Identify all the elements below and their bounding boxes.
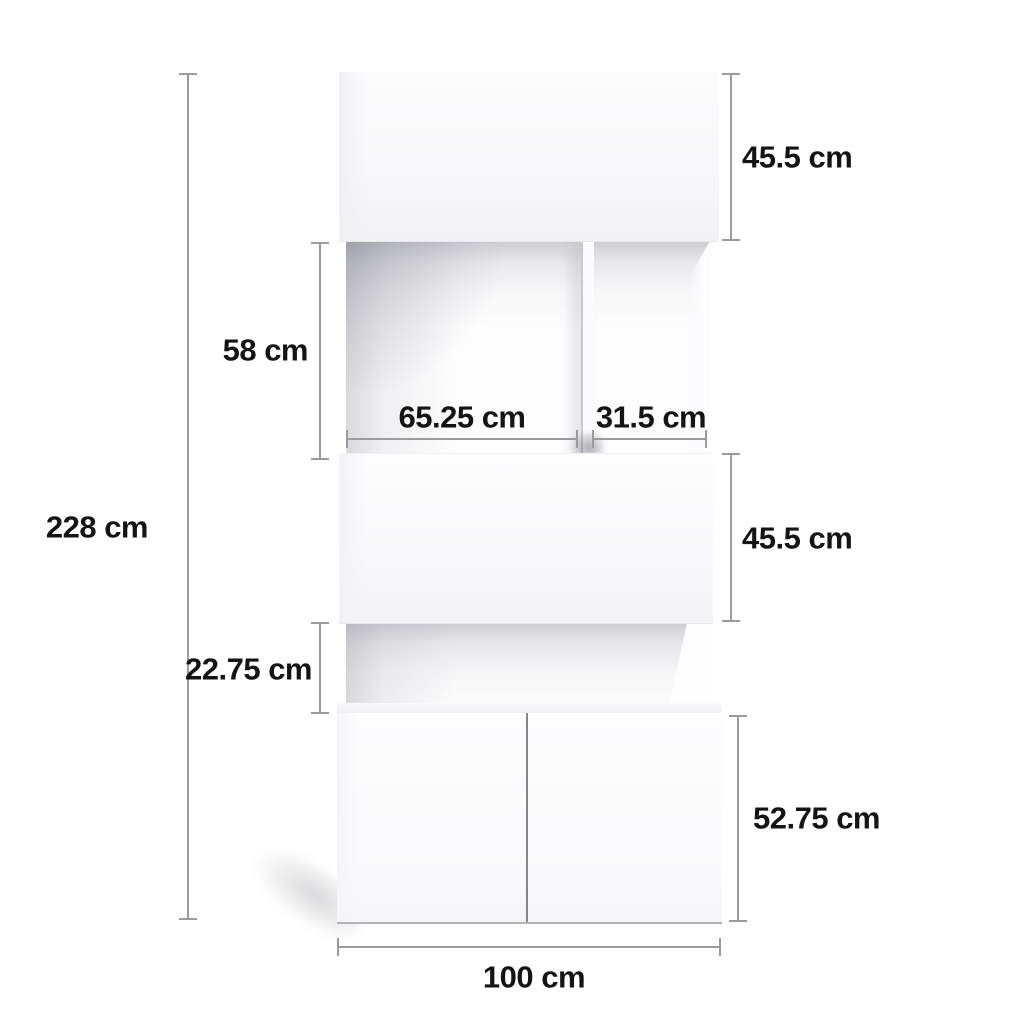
dimension-line-left-opening-width <box>346 438 578 440</box>
recess-corner-shadow <box>346 241 564 391</box>
label-total-width: 100 cm <box>483 962 585 993</box>
label-base-cabinet-height: 52.75 cm <box>753 803 880 834</box>
dimension-line-base-cabinet-height <box>737 715 739 922</box>
door-seam <box>526 713 528 922</box>
label-top-cabinet-height: 45.5 cm <box>742 142 852 173</box>
lower-recess <box>346 622 713 705</box>
label-open-shelf-height: 58 cm <box>223 335 308 366</box>
dimension-line-total-width <box>337 946 721 948</box>
dimension-line-middle-cabinet-height <box>730 453 732 622</box>
dimension-line-top-cabinet-height <box>730 73 732 241</box>
top-cabinet <box>339 72 719 242</box>
label-right-opening-width: 31.5 cm <box>596 402 706 433</box>
label-middle-cabinet-height: 45.5 cm <box>742 523 852 554</box>
dimension-line-right-opening-width <box>592 438 707 440</box>
dimension-line-total-height <box>187 73 189 920</box>
shelf-divider <box>581 241 594 455</box>
middle-cabinet <box>339 453 713 624</box>
base-cabinet <box>337 713 722 924</box>
lower-recess-left-shadow <box>346 622 713 705</box>
dimension-diagram: 228 cm 45.5 cm 58 cm 65.25 cm 31.5 cm 45… <box>0 0 1024 1024</box>
label-total-height: 228 cm <box>46 512 148 543</box>
dimension-line-open-shelf-height <box>319 242 321 460</box>
dimension-line-lower-opening-height <box>319 622 321 714</box>
label-lower-opening-height: 22.75 cm <box>185 654 312 685</box>
label-left-opening-width: 65.25 cm <box>399 402 526 433</box>
